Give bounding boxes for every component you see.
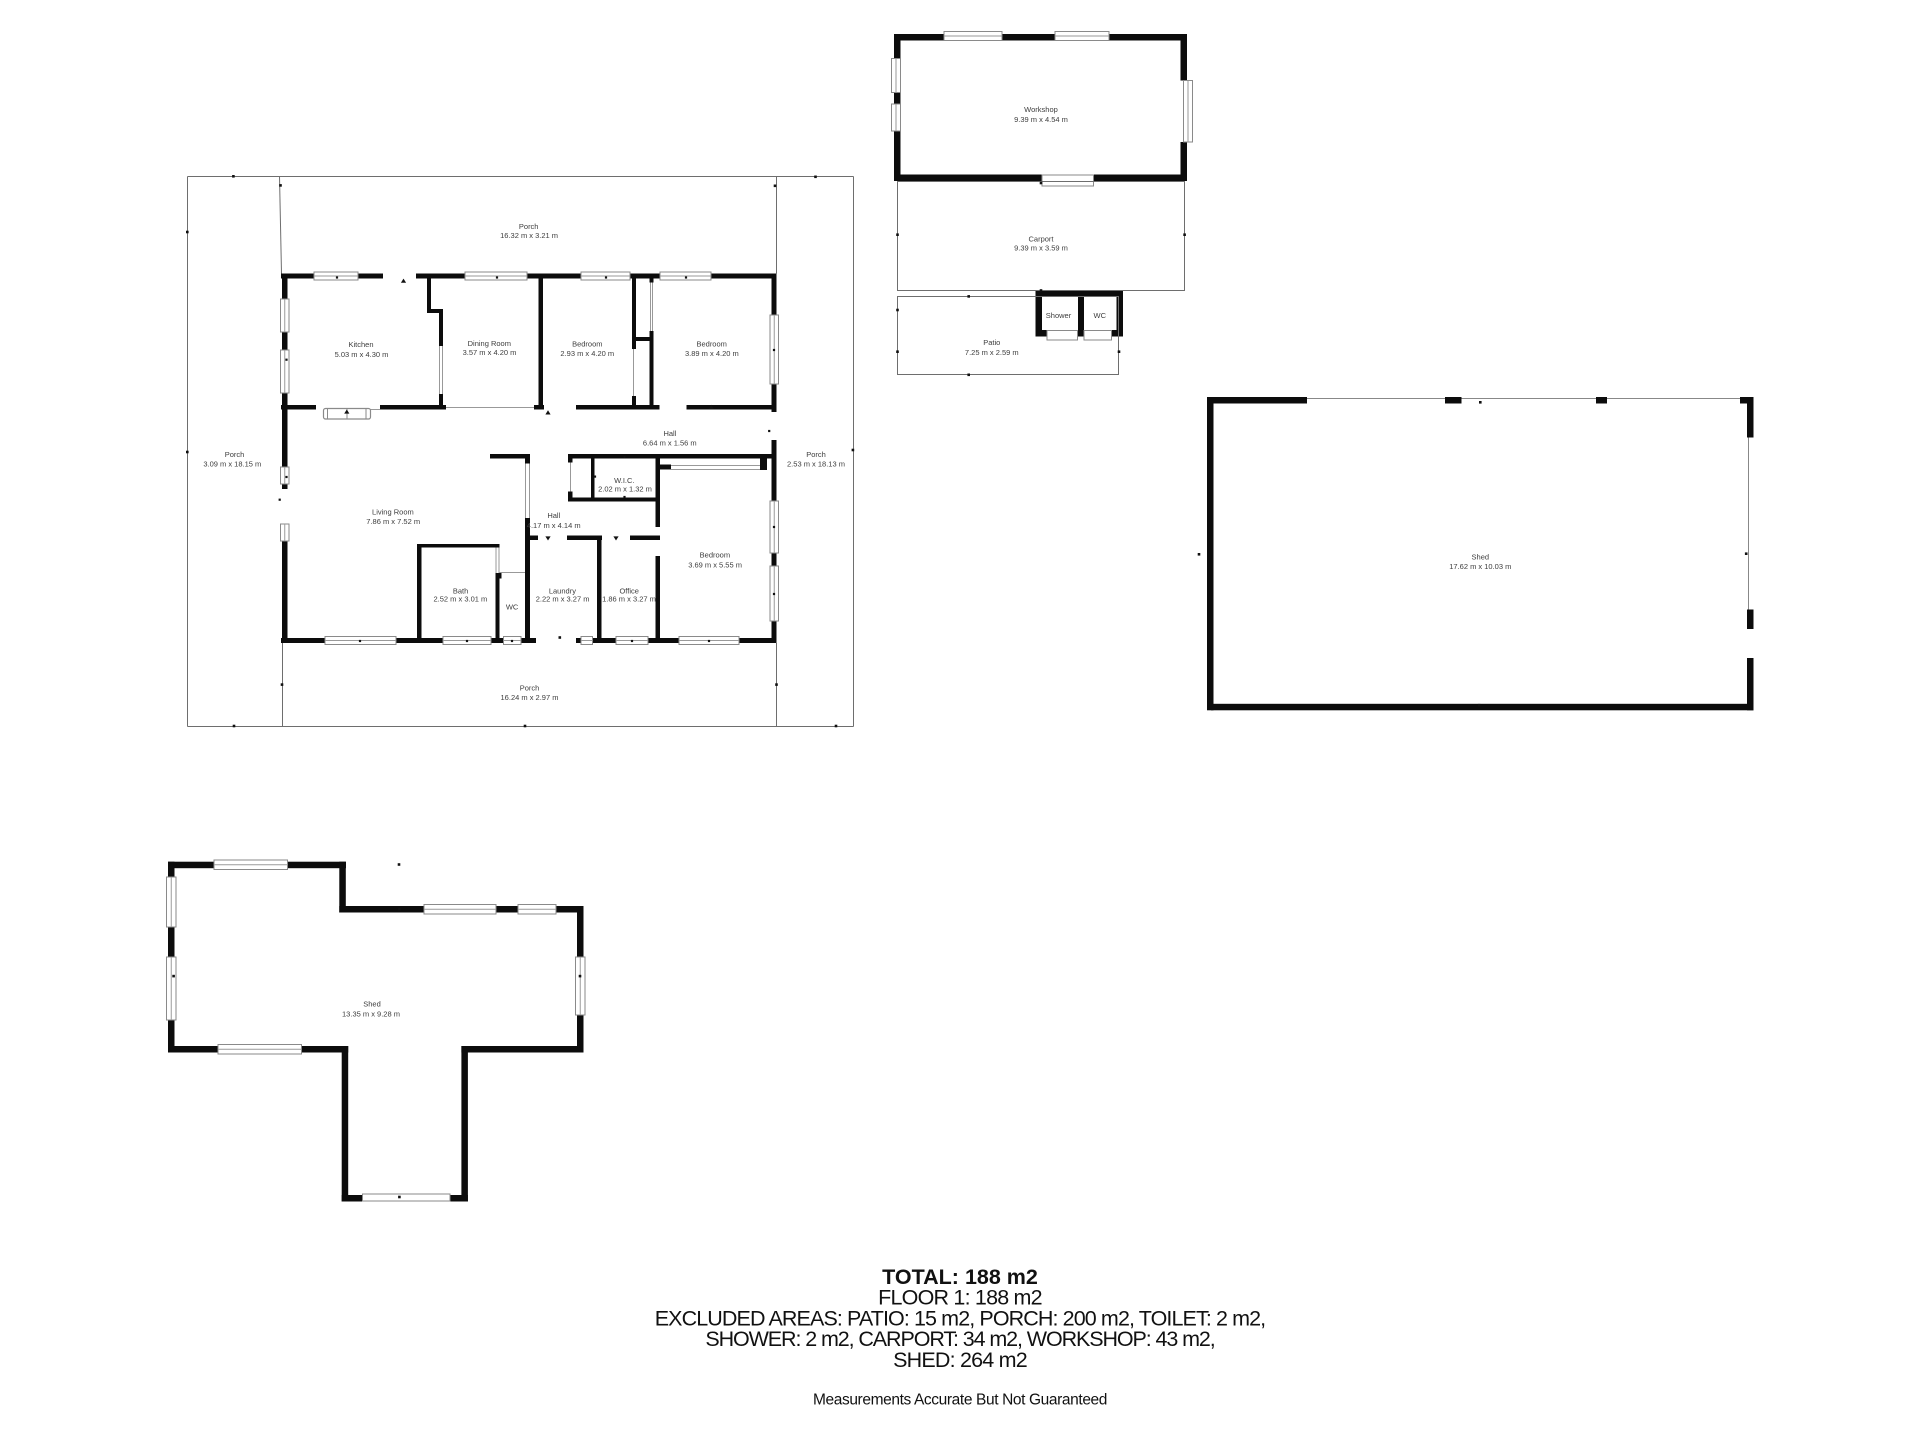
svg-text:7.86 m x 7.52 m: 7.86 m x 7.52 m [366,517,420,526]
svg-text:5.03 m x 4.30 m: 5.03 m x 4.30 m [335,350,389,359]
svg-text:16.24 m x 2.97 m: 16.24 m x 2.97 m [501,693,559,702]
svg-text:Porch: Porch [520,684,540,693]
svg-text:4.17 m x 4.14 m: 4.17 m x 4.14 m [527,521,581,530]
svg-text:WC: WC [1094,311,1107,320]
svg-text:Measurements Accurate But Not: Measurements Accurate But Not Guaranteed [813,1392,1107,1409]
svg-text:Bedroom: Bedroom [696,340,726,349]
svg-text:Bedroom: Bedroom [572,340,602,349]
svg-text:2.53 m x 18.13 m: 2.53 m x 18.13 m [787,460,845,469]
svg-text:16.32 m x 3.21 m: 16.32 m x 3.21 m [500,231,558,240]
svg-text:9.39 m x 3.59 m: 9.39 m x 3.59 m [1014,243,1068,252]
svg-text:Patio: Patio [983,338,1000,347]
svg-text:SHED: 264 m2: SHED: 264 m2 [893,1348,1027,1372]
svg-text:3.69 m x 5.55 m: 3.69 m x 5.55 m [688,561,742,570]
svg-text:Hall: Hall [663,429,676,438]
svg-text:Carport: Carport [1028,234,1054,243]
svg-text:3.09 m x 18.15 m: 3.09 m x 18.15 m [203,460,261,469]
svg-text:Living Room: Living Room [372,507,414,516]
svg-text:Shower: Shower [1046,311,1072,320]
svg-text:3.57 m x 4.20 m: 3.57 m x 4.20 m [463,348,517,357]
svg-text:Shed: Shed [1472,553,1490,562]
svg-text:6.64 m x 1.56 m: 6.64 m x 1.56 m [643,439,697,448]
svg-text:WC: WC [506,603,519,612]
svg-text:Porch: Porch [225,450,245,459]
svg-text:Porch: Porch [519,222,539,231]
svg-text:2.22 m x 3.27 m: 2.22 m x 3.27 m [536,595,590,604]
svg-text:7.25 m x 2.59 m: 7.25 m x 2.59 m [965,348,1019,357]
svg-text:9.39 m x 4.54 m: 9.39 m x 4.54 m [1014,115,1068,124]
svg-text:2.02 m x 1.32 m: 2.02 m x 1.32 m [598,484,652,493]
svg-text:Dining Room: Dining Room [468,339,511,348]
svg-text:17.62 m x 10.03 m: 17.62 m x 10.03 m [1449,562,1511,571]
svg-text:2.52 m x 3.01 m: 2.52 m x 3.01 m [434,595,488,604]
svg-text:Workshop: Workshop [1024,105,1058,114]
svg-text:2.93 m x 4.20 m: 2.93 m x 4.20 m [560,349,614,358]
svg-text:3.89 m x 4.20 m: 3.89 m x 4.20 m [685,349,739,358]
svg-text:13.35 m x 9.28 m: 13.35 m x 9.28 m [342,1009,400,1018]
svg-text:Porch: Porch [806,450,826,459]
svg-text:1.86 m x 3.27 m: 1.86 m x 3.27 m [602,595,656,604]
svg-text:Bedroom: Bedroom [700,551,730,560]
svg-text:Shed: Shed [363,1000,381,1009]
svg-text:Hall: Hall [547,511,560,520]
svg-text:Kitchen: Kitchen [348,340,373,349]
